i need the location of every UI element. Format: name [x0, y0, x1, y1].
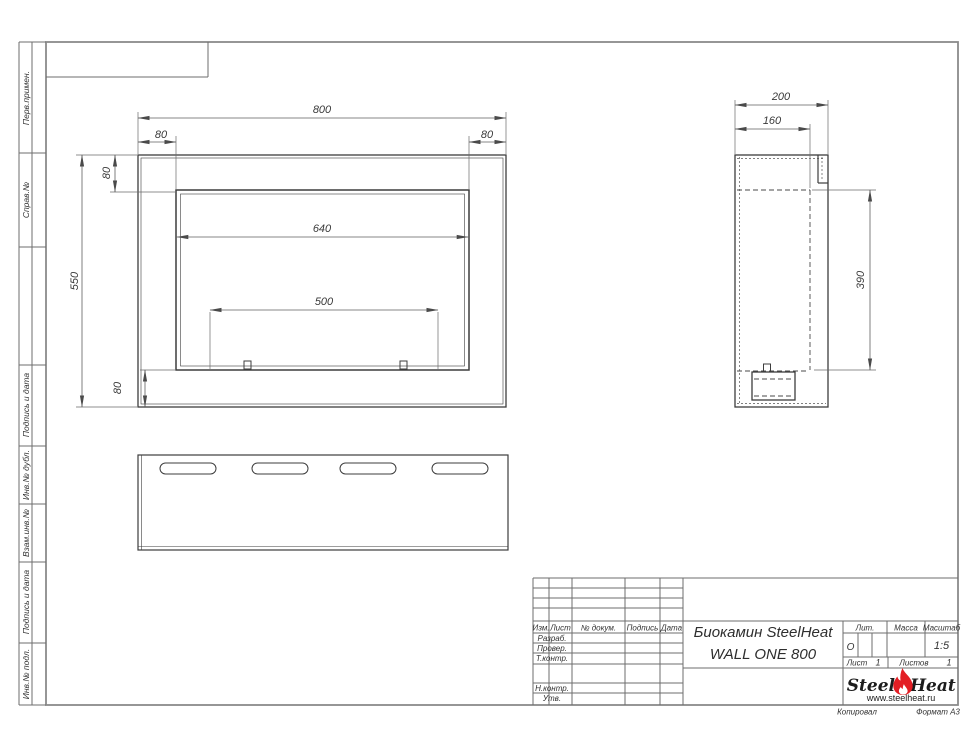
drawing-sheet: Перв.примен. Справ.№ Подпись и дата Инв.…	[0, 0, 970, 749]
titleblock-sheets-label: Листов	[898, 659, 928, 668]
titleblock-col-doc: № докум.	[581, 624, 616, 633]
vent-slot-3	[340, 463, 396, 474]
product-title-line1: Биокамин SteelHeat	[694, 624, 834, 641]
titleblock-col-podpis: Подпись	[627, 624, 659, 633]
titleblock-row-razrab: Разраб.	[538, 634, 567, 643]
extension-lines	[76, 100, 876, 407]
steelheat-logo: Steel Heat www.steelheat.ru	[847, 668, 956, 703]
titleblock-row-tkontr: Т.контр.	[536, 654, 568, 663]
titleblock-scale-label: Масштаб	[923, 624, 961, 633]
titleblock-row-prover: Провер.	[537, 644, 567, 653]
dimension-labels: 800 80 80 80 550 640 500 80 200 160 390	[69, 91, 867, 394]
dim-label-80-right-flange: 80	[481, 129, 494, 141]
dim-label-550: 550	[69, 271, 81, 290]
logo-website: www.steelheat.ru	[866, 693, 936, 703]
titleblock-scale-value: 1:5	[934, 640, 950, 652]
front-burner-tab-left	[244, 361, 251, 369]
top-left-stamp-box	[46, 42, 208, 77]
titleblock-row-nkontr: Н.контр.	[535, 684, 569, 693]
dim-label-200: 200	[771, 91, 791, 103]
vent-slot-4	[432, 463, 488, 474]
titleblock-sheet-value: 1	[875, 658, 880, 668]
vent-slot-1	[160, 463, 216, 474]
front-burner-tab-right	[400, 361, 407, 369]
footer-format-label: Формат А3	[916, 708, 960, 717]
sidebar-label-inv-dubl: Инв.№ дубл.	[21, 450, 31, 500]
dim-label-160: 160	[763, 115, 782, 127]
sidebar-label-podpis-data-1: Подпись и дата	[21, 373, 31, 438]
vent-slot-2	[252, 463, 308, 474]
titleblock-lit-label: Лит.	[855, 624, 875, 633]
sidebar-label-vzam-inv: Взам.инв.№	[21, 509, 31, 557]
dim-label-390: 390	[855, 270, 867, 289]
dim-label-80-left-flange: 80	[155, 129, 168, 141]
sidebar-label-perv-primen: Перв.примен.	[21, 71, 31, 125]
titleblock-sheet-label: Лист	[846, 659, 868, 668]
titleblock-col-list: Лист	[549, 624, 571, 633]
sidebar-label-inv-podl: Инв.№ подл.	[21, 649, 31, 699]
dimension-lines	[82, 105, 870, 407]
sidebar-labels: Перв.примен. Справ.№ Подпись и дата Инв.…	[21, 71, 31, 699]
dim-label-500: 500	[315, 296, 334, 308]
dim-label-80-bottom-flange: 80	[112, 381, 124, 394]
dim-label-80-top-flange: 80	[101, 166, 113, 179]
titleblock-lit-value: О	[847, 642, 855, 653]
frame-footer: Копировал Формат А3	[837, 708, 960, 717]
titleblock-col-izm: Изм.	[532, 624, 549, 633]
bottom-view	[138, 455, 508, 550]
sidebar-label-sprav-no: Справ.№	[21, 182, 31, 218]
titleblock-row-utv: Утв.	[542, 694, 561, 703]
front-view	[138, 155, 506, 407]
titleblock-col-data: Дата	[660, 624, 683, 633]
footer-copied-label: Копировал	[837, 708, 877, 717]
sheet-frame	[19, 42, 958, 705]
product-title-line2: WALL ONE 800	[710, 646, 817, 663]
sidebar-label-podpis-data-2: Подпись и дата	[21, 570, 31, 635]
dim-label-800: 800	[313, 104, 332, 116]
dim-label-640: 640	[313, 223, 332, 235]
side-view	[735, 155, 828, 407]
titleblock-sheets-value: 1	[946, 658, 951, 668]
titleblock-massa-label: Масса	[894, 624, 918, 633]
